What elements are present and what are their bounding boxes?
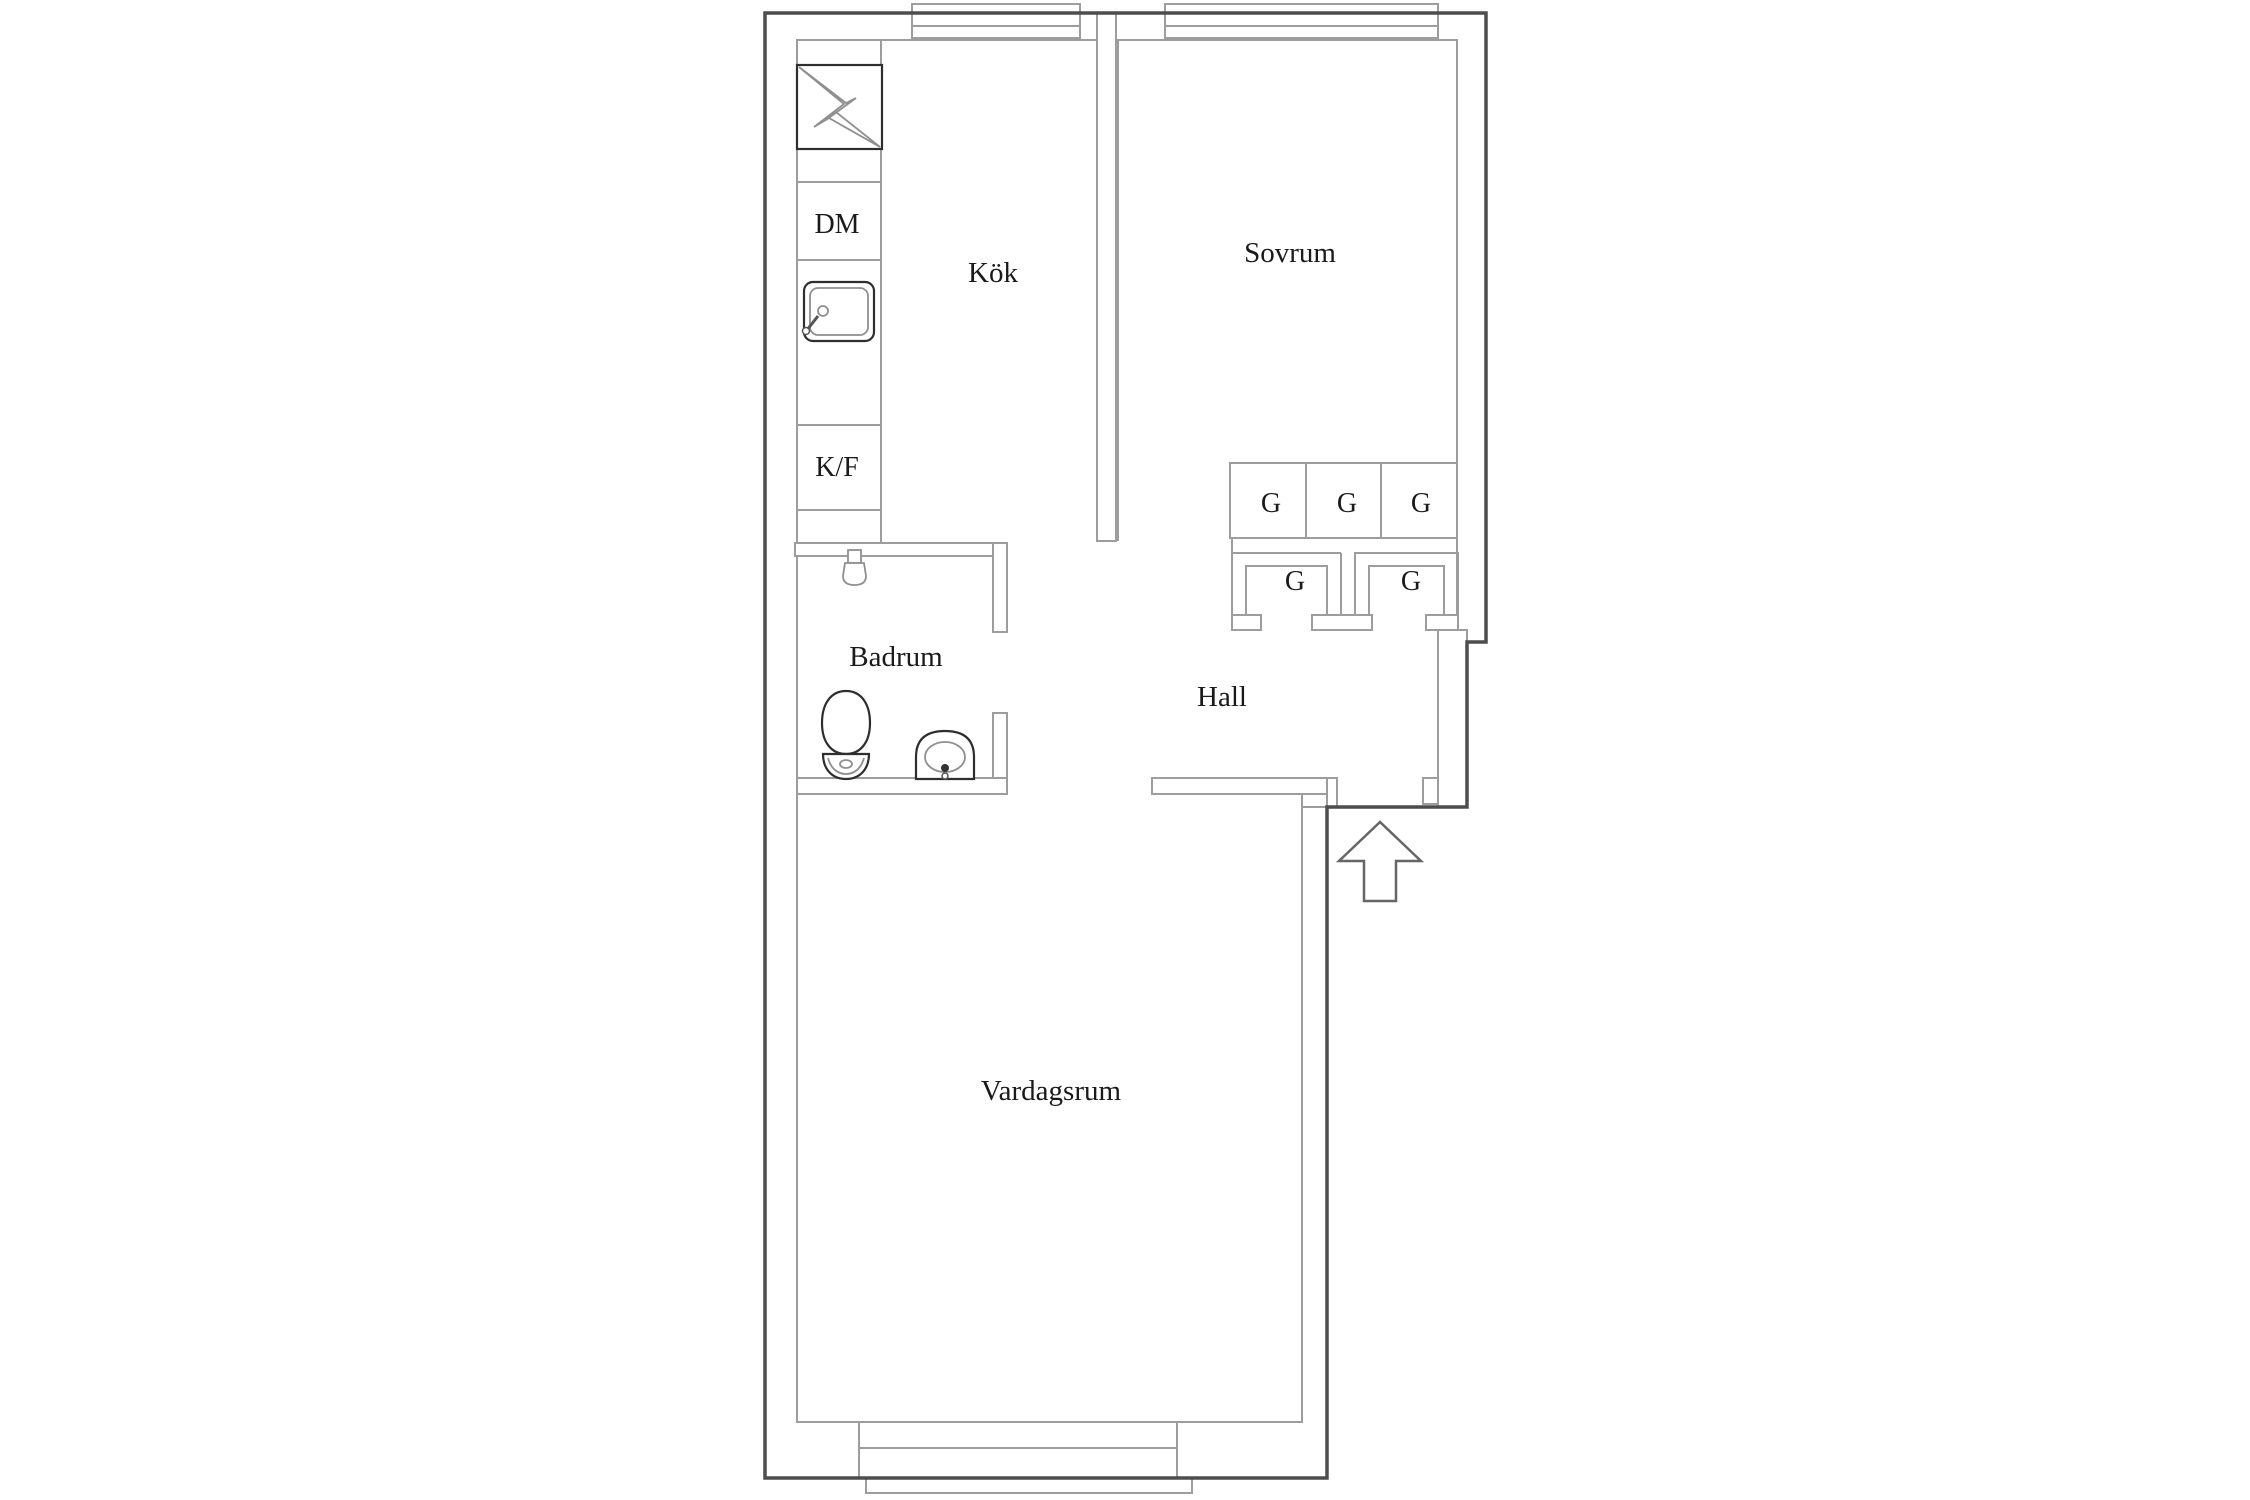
wardrobe-foot-right	[1426, 615, 1458, 630]
wall-kitchen-bedroom	[1097, 13, 1116, 541]
room-label-bedroom: Sovrum	[1244, 237, 1336, 269]
floor-plan-svg: Kök Sovrum Badrum Hall Vardagsrum DM K/F…	[0, 0, 2250, 1500]
room-label-living-room: Vardagsrum	[981, 1075, 1122, 1107]
wardrobe-label: G	[1337, 488, 1357, 519]
room-label-hall: Hall	[1197, 681, 1247, 713]
floor-plan-canvas: Kök Sovrum Badrum Hall Vardagsrum DM K/F…	[0, 0, 2250, 1500]
washbasin-faucet	[942, 773, 948, 779]
wardrobe-foot-left	[1232, 615, 1261, 630]
shower-neck	[848, 550, 861, 563]
sink-faucet-base	[803, 328, 810, 335]
wall-kitchen-bathroom	[795, 543, 1007, 556]
entry-door-jamb	[1423, 778, 1438, 804]
wall-bathroom-bottom	[797, 778, 1007, 794]
bedroom-window	[1165, 4, 1438, 38]
living-room-outline	[797, 794, 1302, 1422]
washbasin-icon	[916, 731, 974, 779]
living-room-window-sill	[866, 1478, 1192, 1493]
wall-bathroom-right-upper	[993, 543, 1007, 632]
labels: Kök Sovrum Badrum Hall Vardagsrum DM K/F…	[814, 209, 1431, 1107]
room-label-bathroom: Badrum	[849, 641, 943, 673]
toilet-icon	[822, 691, 870, 779]
kitchen-sink-icon	[803, 282, 875, 341]
washbasin-drain	[941, 764, 949, 772]
room-outlines	[797, 40, 1457, 1422]
wall-hall-east-lower	[1438, 630, 1467, 807]
toilet-cistern	[823, 754, 869, 779]
wall-bands	[795, 13, 1467, 807]
living-room-window-frame	[859, 1422, 1177, 1478]
wardrobe-label: G	[1411, 488, 1431, 519]
sink-outer	[804, 282, 874, 341]
wardrobe-foot-middle	[1312, 615, 1372, 630]
shower-head	[843, 563, 866, 585]
entrance-arrow-icon	[1339, 822, 1421, 901]
exterior-wall-outline	[765, 13, 1486, 1478]
wardrobe-label: G	[1261, 488, 1281, 519]
toilet-bowl	[822, 691, 870, 754]
appliance-label-dishwasher: DM	[814, 209, 859, 240]
kitchen-fixtures	[797, 65, 882, 341]
kitchen-window	[912, 4, 1080, 38]
room-label-kitchen: Kök	[968, 257, 1018, 289]
wall-hall-livingroom	[1152, 778, 1337, 794]
stove-icon	[797, 65, 882, 149]
wardrobe-label: G	[1285, 566, 1305, 597]
wall-entry-stub-left	[1327, 778, 1337, 807]
appliance-label-fridge-freezer: K/F	[815, 452, 859, 483]
wardrobe-label: G	[1401, 566, 1421, 597]
living-room-window	[859, 1422, 1192, 1493]
